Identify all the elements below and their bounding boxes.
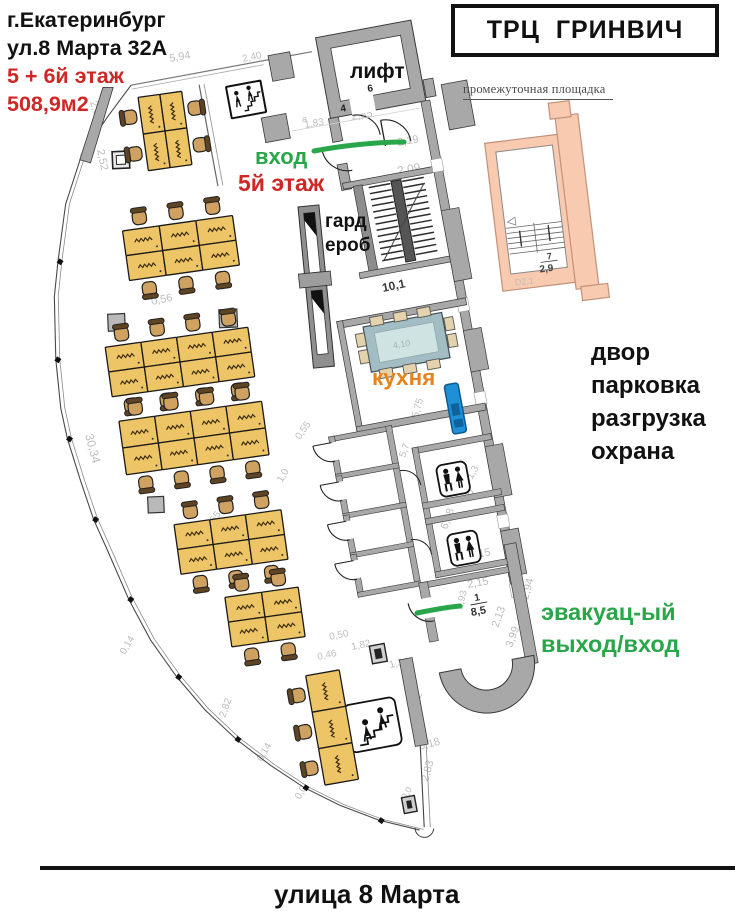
svg-text:5,7: 5,7 bbox=[397, 442, 412, 459]
svg-text:1,82: 1,82 bbox=[350, 638, 372, 653]
svg-text:0,46: 0,46 bbox=[316, 648, 338, 663]
svg-text:5,94: 5,94 bbox=[168, 49, 191, 65]
svg-text:8,5: 8,5 bbox=[470, 604, 487, 619]
svg-text:2,52: 2,52 bbox=[94, 148, 110, 171]
svg-text:10,1: 10,1 bbox=[381, 276, 407, 295]
svg-text:2,13: 2,13 bbox=[490, 605, 509, 629]
svg-text:1,0: 1,0 bbox=[275, 467, 292, 485]
svg-text:0,55: 0,55 bbox=[293, 419, 313, 442]
svg-text:a: a bbox=[302, 114, 307, 124]
svg-text:1: 1 bbox=[473, 592, 481, 604]
svg-text:0,50: 0,50 bbox=[328, 628, 350, 643]
svg-text:0,14: 0,14 bbox=[118, 634, 137, 657]
svg-text:30,34: 30,34 bbox=[82, 432, 103, 465]
svg-text:2,82: 2,82 bbox=[217, 697, 234, 719]
svg-text:2,9: 2,9 bbox=[539, 263, 555, 276]
